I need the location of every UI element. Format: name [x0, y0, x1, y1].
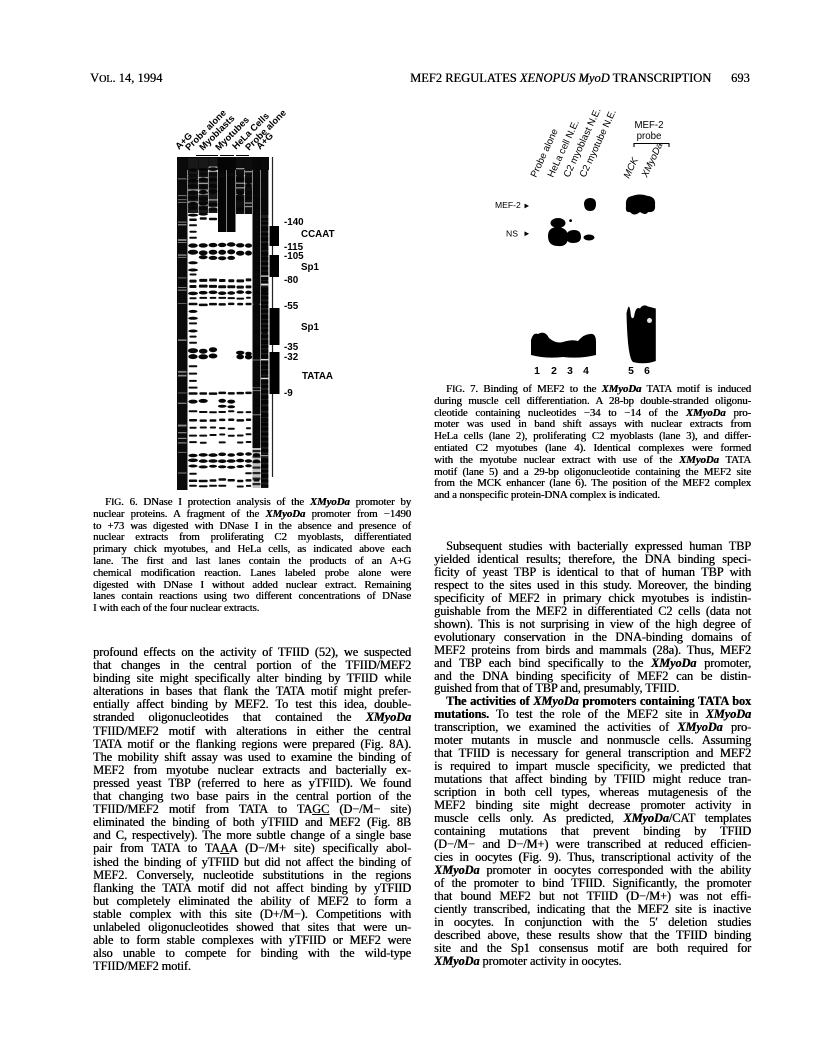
svg-text:Sp1: Sp1 [301, 322, 320, 333]
svg-text:TATAA: TATAA [302, 371, 333, 382]
svg-text:-9: -9 [284, 388, 293, 399]
svg-text:-55: -55 [284, 301, 299, 312]
svg-text:3: 3 [567, 366, 573, 377]
svg-text:NS: NS [506, 229, 518, 239]
svg-text:MEF-2: MEF-2 [495, 200, 521, 210]
svg-text:Sp1: Sp1 [301, 262, 320, 273]
svg-text:-140: -140 [284, 217, 304, 228]
svg-text:-105: -105 [284, 251, 304, 262]
svg-text:2: 2 [551, 366, 557, 377]
svg-text:CCAAT: CCAAT [301, 229, 335, 240]
svg-text:-80: -80 [284, 275, 299, 286]
svg-text:4: 4 [583, 366, 589, 377]
svg-text:1: 1 [534, 366, 540, 377]
svg-text:MEF-2: MEF-2 [634, 120, 663, 131]
svg-text:probe: probe [637, 131, 662, 142]
svg-text:MCK: MCK [622, 156, 641, 181]
svg-text:6: 6 [644, 366, 650, 377]
svg-text:XMyoDa: XMyoDa [639, 140, 665, 180]
svg-text:5: 5 [628, 366, 634, 377]
svg-text:-32: -32 [284, 352, 299, 363]
